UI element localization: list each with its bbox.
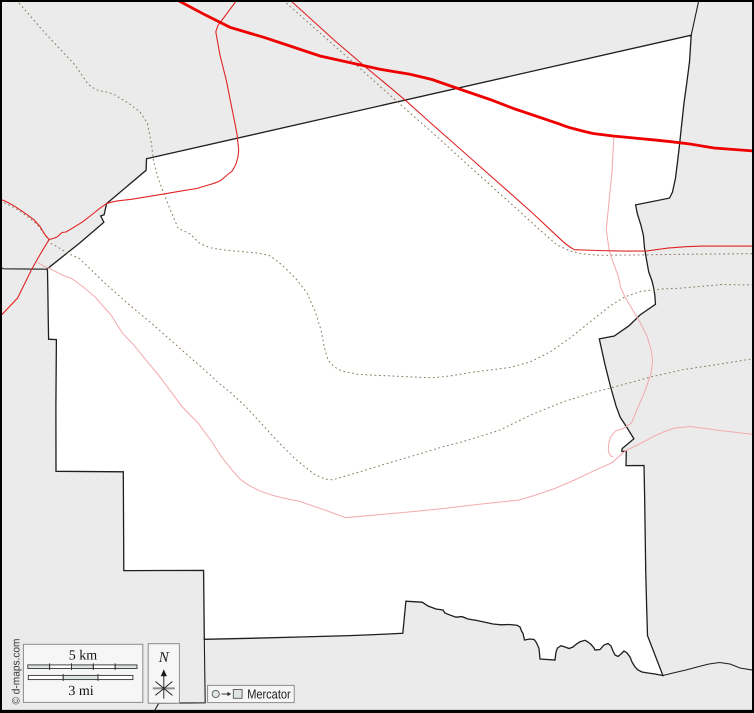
svg-text:5 km: 5 km: [69, 649, 98, 664]
svg-text:N: N: [158, 650, 170, 666]
svg-text:© d-maps.com: © d-maps.com: [11, 638, 23, 704]
svg-text:3 mi: 3 mi: [68, 684, 93, 699]
svg-text:Mercator: Mercator: [247, 686, 291, 701]
